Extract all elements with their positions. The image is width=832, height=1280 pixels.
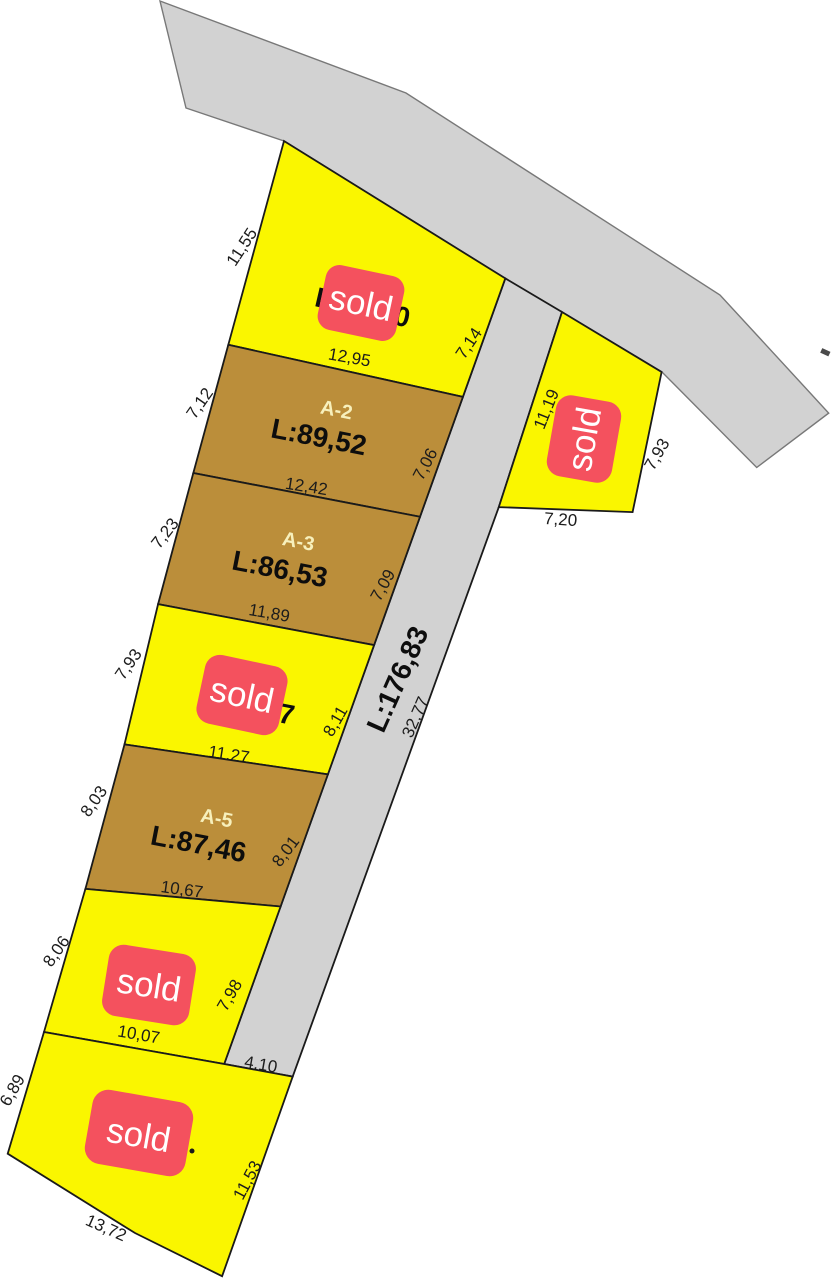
svg-text:7,20: 7,20 — [543, 509, 577, 530]
